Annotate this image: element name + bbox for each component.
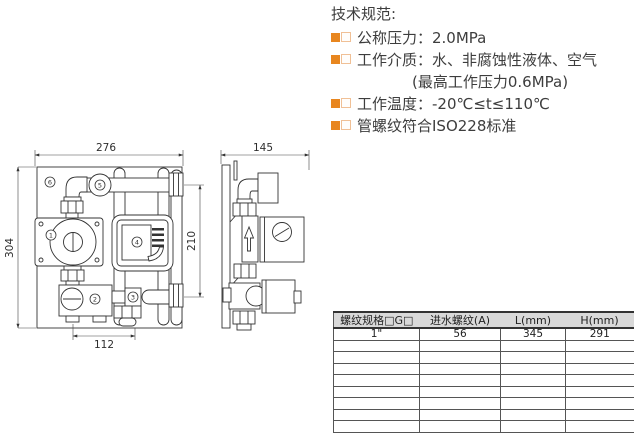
bullet-outline-square-icon [341,54,351,64]
svg-text:145: 145 [253,142,273,154]
table-cell [334,421,420,433]
spec-item-continuation: (最高工作压力0.6MPa) [331,70,643,92]
spec-table: 螺纹规格□G□ 进水螺纹(A) L(mm) H(mm) 1"56345291 [333,311,634,433]
col-header-inlet-thread: 进水螺纹(A) [420,312,501,328]
table-cell [334,398,420,410]
union-nut [234,264,256,278]
circulation-pump [35,218,103,266]
svg-text:6: 6 [48,178,52,186]
pump-side [242,216,304,262]
table-cell [566,375,634,387]
callout-1: 1 [46,230,56,240]
table-row [334,386,634,398]
svg-text:112: 112 [94,339,114,351]
callout-3: 3 [128,292,138,302]
table-header-row: 螺纹规格□G□ 进水螺纹(A) L(mm) H(mm) [334,312,634,328]
side-view: 145 [221,142,309,330]
table-cell [501,363,566,375]
dimension-276: 276 [35,142,183,166]
bullet-filled-square-icon [331,55,340,64]
table-cell [566,386,634,398]
union-nut [233,199,256,216]
union-nut [233,311,255,330]
table-cell: 56 [420,328,501,340]
bullet-outline-square-icon [341,120,351,130]
spec-text: 工作温度：-20℃≤t≤110℃ [357,93,550,114]
table-cell [501,409,566,421]
svg-text:1: 1 [49,231,53,239]
flow-meter [112,215,173,271]
callout-4: 4 [132,237,142,247]
table-cell [334,363,420,375]
col-header-length: L(mm) [501,312,566,328]
table-cell [420,409,501,421]
union-nut [169,173,183,196]
table-row [334,375,634,387]
spec-text: (最高工作压力0.6MPa) [412,71,568,92]
table-cell [334,409,420,421]
svg-text:276: 276 [96,142,116,154]
table-cell [501,386,566,398]
table-cell [334,352,420,364]
bullet-outline-square-icon [341,98,351,108]
technical-drawing: 6 5 1 4 2 3 [0,137,335,352]
table-cell: 345 [501,328,566,340]
table-cell [420,363,501,375]
front-view: 6 5 1 4 2 3 [4,142,204,351]
table-cell [420,340,501,352]
svg-text:4: 4 [135,238,139,246]
table-cell [566,409,634,421]
callout-6: 6 [45,177,55,187]
specs-title: 技术规范: [331,3,643,26]
table-cell [566,421,634,433]
table-row [334,421,634,433]
callout-5: 5 [95,180,105,190]
table-cell: 1" [334,328,420,340]
tech-specs-block: 技术规范: 公称压力：2.0MPa 工作介质：水、非腐蚀性液体、空气 (最高工作… [331,3,643,136]
table-cell [420,386,501,398]
bleed-pin [234,161,237,180]
table-cell [420,398,501,410]
table-cell [566,340,634,352]
spec-text: 工作介质：水、非腐蚀性液体、空气 [357,49,597,70]
table-cell [334,375,420,387]
col-header-height: H(mm) [566,312,634,328]
spec-item: 管螺纹符合ISO228标准 [331,114,643,136]
table-cell [501,352,566,364]
svg-text:210: 210 [186,231,198,251]
junction-box [258,173,278,203]
spec-text: 管螺纹符合ISO228标准 [357,115,516,136]
table-row [334,352,634,364]
dimension-304: 304 [4,167,36,328]
svg-text:5: 5 [98,181,102,189]
table-cell [501,421,566,433]
valve-side [223,280,301,313]
table-cell [420,375,501,387]
table-cell [420,421,501,433]
spec-text: 公称压力：2.0MPa [357,27,486,48]
table-row [334,340,634,352]
table-cell [420,352,501,364]
bullet-outline-square-icon [341,32,351,42]
svg-text:2: 2 [93,295,97,303]
svg-text:304: 304 [4,238,16,258]
bullet-filled-square-icon [331,121,340,130]
table-row [334,398,634,410]
table-cell [501,340,566,352]
table-cell [334,386,420,398]
table-row [334,409,634,421]
table-cell [566,398,634,410]
callout-2: 2 [90,294,100,304]
svg-text:3: 3 [131,293,135,301]
spec-item: 工作介质：水、非腐蚀性液体、空气 [331,48,643,70]
spec-item: 工作温度：-20℃≤t≤110℃ [331,92,643,114]
table-cell [334,340,420,352]
table-cell: 291 [566,328,634,340]
datasheet-page: 技术规范: 公称压力：2.0MPa 工作介质：水、非腐蚀性液体、空气 (最高工作… [0,0,644,437]
table-row [334,363,634,375]
table-cell [501,375,566,387]
table-cell [566,363,634,375]
bullet-filled-square-icon [331,33,340,42]
table-cell [566,352,634,364]
table-cell [501,398,566,410]
dimension-210: 210 [184,185,204,297]
spec-item: 公称压力：2.0MPa [331,26,643,48]
col-header-thread-spec: 螺纹规格□G□ [334,312,420,328]
bullet-filled-square-icon [331,99,340,108]
table-row: 1"56345291 [334,328,634,340]
